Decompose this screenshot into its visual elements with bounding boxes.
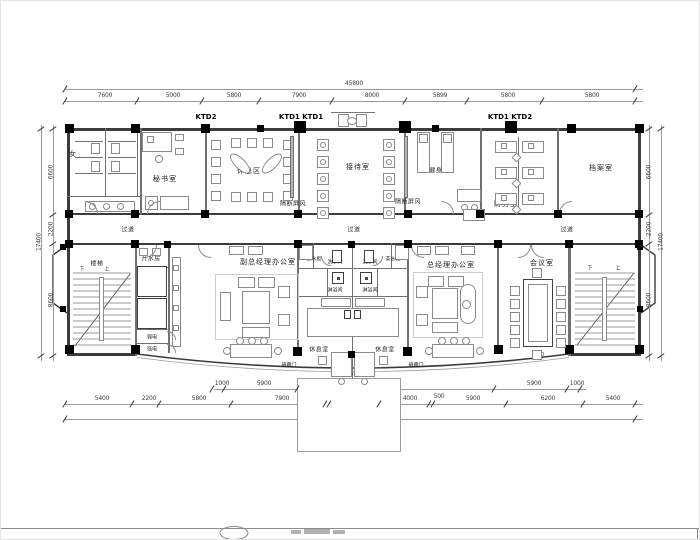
label-hidden-door-left: 暗藏门 [281, 362, 296, 369]
structural-column [635, 345, 644, 354]
meeting-chair [532, 268, 542, 278]
toilet-partition [67, 196, 141, 197]
meeting-chair [556, 299, 566, 309]
reception-chair [317, 190, 329, 202]
chair [476, 347, 484, 355]
lounge-chair [211, 157, 221, 167]
dim-bottom-seg: 6200 [541, 395, 555, 402]
structural-column [635, 210, 643, 218]
partition-screen [404, 136, 408, 198]
structural-column [348, 351, 355, 358]
wc-fixture [332, 250, 342, 263]
reception-chair [383, 190, 395, 202]
dim-bottom-seg: 500 [434, 393, 445, 400]
office-table [230, 344, 272, 358]
finance-chair [512, 179, 522, 189]
dim-top-seg: 5000 [166, 92, 180, 99]
structural-column [131, 210, 139, 218]
room-label-corridor-3: 过道 [560, 225, 573, 234]
sheet-caption-smudge [333, 530, 345, 534]
lounge-chair [247, 138, 257, 148]
structural-column [565, 345, 574, 354]
structural-column [294, 240, 302, 248]
stair-arrow-down-left: 下 [79, 266, 84, 273]
dim-top-seg: 7900 [292, 92, 306, 99]
room-label-deputy-gm-office: 副总经理办公室 [240, 257, 296, 267]
wc-fixture [91, 143, 100, 154]
reception-chair [383, 207, 395, 219]
dim-bottom-seg: 5400 [95, 395, 109, 402]
chair [438, 337, 446, 345]
desk-chair [361, 378, 368, 385]
coffee-table-oval [259, 150, 285, 176]
partition [135, 343, 169, 344]
structural-column [554, 210, 562, 218]
side-chair [318, 356, 327, 365]
elevator-shaft [137, 298, 167, 329]
wall-cabinet [435, 246, 449, 255]
door-swing [411, 245, 424, 258]
dim-overall-width-top: 45800 [345, 80, 363, 87]
dim-left-seg: 6600 [48, 165, 55, 179]
room-label-stairs-left: 楼梯 [90, 259, 103, 268]
dim-bottom-inner: 5900 [527, 380, 541, 387]
finance-chair [512, 153, 522, 163]
structural-column [403, 347, 412, 356]
structural-column [65, 345, 74, 354]
dim-bottom-inner: 1000 [215, 380, 229, 387]
dim-bottom-seg: 7900 [275, 395, 289, 402]
structural-column [637, 244, 643, 250]
chair [450, 337, 458, 345]
structural-column [131, 240, 139, 248]
storage-cell [354, 310, 361, 319]
treadmill-console [443, 134, 452, 143]
reception-chair [383, 173, 395, 185]
meeting-chair [510, 299, 520, 309]
dim-top-seg: 7600 [98, 92, 112, 99]
dimension-line [65, 101, 643, 102]
structural-column [565, 240, 573, 248]
reception-chair-cushion [320, 159, 326, 165]
floorplan-sheet: 45800 7600 5000 5800 7900 8000 5899 5800… [0, 0, 700, 540]
wall-exterior-bottom-right [569, 353, 641, 356]
sink [117, 203, 124, 210]
reception-chair-cushion [320, 193, 326, 199]
reception-chair-cushion [386, 193, 392, 199]
structural-column [60, 306, 66, 312]
side-table [175, 134, 184, 141]
dim-overall-height-left: 17400 [36, 233, 43, 251]
computer [147, 136, 154, 143]
finance-desk-spine [518, 137, 519, 213]
reception-chair [317, 173, 329, 185]
entrance-pier [356, 114, 367, 127]
counter-item [173, 325, 179, 331]
lounge-chair [231, 192, 241, 202]
structural-column [257, 125, 264, 132]
treadmill-console [419, 134, 428, 143]
room-label-weak-power: 弱电 [147, 334, 157, 341]
side-chair [379, 356, 388, 365]
sofa [432, 322, 458, 333]
chair [223, 347, 231, 355]
sofa [428, 276, 444, 287]
gym-machine [457, 189, 481, 202]
stair-arrow-up-right: 上 [615, 265, 620, 272]
lounge-chair [247, 192, 257, 202]
stair-rail [99, 277, 104, 341]
dim-overall-height-right: 17400 [658, 233, 665, 251]
structural-column [65, 124, 74, 133]
writing-desk [354, 352, 375, 377]
counter-item [173, 305, 179, 311]
structural-column [505, 121, 517, 133]
sheet-border-right [697, 528, 698, 540]
door-swing-double-left [518, 245, 531, 258]
dim-right-seg: 6600 [646, 165, 653, 179]
room-label-strong-power: 强电 [147, 346, 157, 353]
finance-monitor [528, 195, 534, 201]
partition [568, 243, 571, 356]
chair [248, 337, 256, 345]
reception-chair-cushion [386, 176, 392, 182]
elevator-shaft [137, 266, 167, 297]
finance-monitor [501, 195, 507, 201]
wardrobe [355, 298, 385, 307]
sheet-border-bottom [1, 528, 700, 529]
counter-item [173, 265, 179, 271]
wall-exterior-top [67, 128, 641, 131]
side-table [175, 148, 184, 155]
left-bay-outline [53, 245, 67, 313]
stall-line [108, 141, 136, 142]
room-label-archive: 档案室 [589, 163, 613, 173]
dim-right-seg: 2200 [646, 222, 653, 236]
stair-arrow-up-left: 上 [104, 266, 109, 273]
stall-line [75, 173, 103, 174]
dim-bottom-seg: 4000 [403, 395, 417, 402]
axis-tag-ktd1-ktd2: KTD1 KTD2 [488, 113, 532, 121]
wall-cabinet [229, 246, 244, 255]
shower-drain [337, 277, 340, 280]
meeting-chair [556, 286, 566, 296]
storage-cell [344, 310, 351, 319]
partition [135, 329, 169, 330]
room-label-corridor-1: 过道 [121, 225, 134, 234]
finance-monitor [528, 143, 534, 149]
wall-exterior-bottom-left [67, 353, 137, 356]
lounge-chair [263, 192, 273, 202]
sink [103, 203, 110, 210]
meeting-chair [556, 325, 566, 335]
sofa [258, 277, 275, 288]
structural-column [404, 240, 412, 248]
wc-fixture [91, 161, 100, 172]
lounge-chair [231, 138, 241, 148]
structural-column [65, 210, 73, 218]
desk-chair [338, 378, 345, 385]
sofa [220, 292, 231, 321]
door-swing [441, 201, 454, 214]
wall-cabinet [248, 246, 263, 255]
lounge-chair [211, 174, 221, 184]
dim-top-seg: 5800 [585, 92, 599, 99]
lounge-chair [263, 138, 273, 148]
door-swing [198, 245, 211, 258]
label-hidden-door-right: 暗藏门 [408, 362, 423, 369]
structural-column [293, 347, 302, 356]
structural-column [637, 306, 643, 312]
structural-column [348, 241, 355, 248]
structural-column [399, 121, 411, 133]
dim-top-seg: 8000 [365, 92, 379, 99]
partition [557, 128, 559, 215]
sofa [242, 327, 270, 338]
structural-column [131, 124, 140, 133]
entrance-canopy-line [331, 112, 375, 113]
label-shower-left: 淋浴间 [327, 287, 342, 294]
chair [236, 337, 244, 345]
structural-column [60, 244, 66, 250]
structural-column [294, 210, 302, 218]
reception-chair [317, 139, 329, 151]
structural-column [65, 240, 73, 248]
sheet-caption-smudge [304, 529, 330, 534]
reception-chair-cushion [320, 176, 326, 182]
wardrobe [321, 298, 351, 307]
label-rest-room-left: 休息室 [309, 345, 329, 354]
dim-bottom-seg: 5400 [606, 395, 620, 402]
conference-table-inner [528, 284, 548, 342]
axis-tag-ktd1-ktd1: KTD1 KTD1 [279, 113, 323, 121]
dim-bottom-inner: 5900 [257, 380, 271, 387]
structural-column [494, 345, 503, 354]
chair [260, 337, 268, 345]
chair [462, 337, 470, 345]
partition-screen [290, 136, 294, 198]
executive-chair [462, 300, 471, 309]
counter-item [173, 285, 179, 291]
meeting-chair [510, 325, 520, 335]
partition [497, 243, 499, 351]
sofa [238, 277, 255, 288]
reception-chair [317, 156, 329, 168]
toilet-partition [105, 128, 106, 197]
reception-chair-cushion [386, 210, 392, 216]
room-label-reception: 接待室 [346, 162, 370, 172]
label-shower-right: 淋浴间 [362, 287, 377, 294]
structural-column [432, 125, 439, 132]
cabinet-hatched [160, 196, 189, 210]
basement-entrance-outline [297, 378, 401, 452]
dim-top-seg: 5899 [433, 92, 447, 99]
stall-line [108, 173, 136, 174]
reception-chair [383, 139, 395, 151]
dim-left-seg: 8600 [48, 293, 55, 307]
wc-fixture [111, 161, 120, 172]
armchair [416, 286, 428, 298]
room-label-corridor-2: 过道 [347, 225, 360, 234]
reception-chair-cushion [386, 142, 392, 148]
armchair [278, 286, 290, 298]
stair-arrow-down-right: 下 [587, 265, 592, 272]
wc-fixture [111, 143, 120, 154]
dim-top-seg: 5800 [501, 92, 515, 99]
meeting-chair [510, 312, 520, 322]
axis-tag-ktd2: KTD2 [196, 113, 217, 121]
chair [274, 347, 282, 355]
room-label-secretary: 秘书室 [153, 174, 177, 184]
finance-monitor [528, 169, 534, 175]
lounge-chair [211, 140, 221, 150]
stair-rail [602, 277, 607, 341]
dim-bottom-seg: 5900 [466, 395, 480, 402]
dim-bottom-seg: 2200 [142, 395, 156, 402]
structural-column [567, 124, 576, 133]
partition [205, 128, 207, 215]
structural-column [476, 210, 484, 218]
room-label-meeting-room: 会议室 [530, 258, 554, 268]
meeting-chair [510, 338, 520, 348]
reception-chair-cushion [320, 210, 326, 216]
shower-drain [365, 277, 368, 280]
coffee-table [242, 291, 270, 324]
meeting-chair [556, 312, 566, 322]
dim-top-seg: 5800 [227, 92, 241, 99]
door-swing-double-right [531, 245, 544, 258]
reception-chair-cushion [320, 142, 326, 148]
stall-line [75, 141, 103, 142]
structural-column [164, 241, 171, 248]
reception-chair [317, 207, 329, 219]
stall-line [75, 157, 103, 158]
sheet-caption-smudge [291, 530, 301, 534]
structural-column [201, 210, 209, 218]
structural-column [494, 240, 502, 248]
chair [155, 155, 163, 163]
label-rest-room-right: 休息室 [375, 345, 395, 354]
dim-left-seg: 2200 [48, 222, 55, 236]
lounge-chair [211, 191, 221, 201]
meeting-chair [556, 338, 566, 348]
room-label-screen-2: 隔断屏风 [395, 197, 421, 206]
armchair [416, 314, 428, 326]
structural-column [294, 121, 306, 133]
dim-right-seg: 8600 [646, 293, 653, 307]
armchair [278, 314, 290, 326]
partition [298, 296, 408, 297]
structural-column [201, 124, 210, 133]
reception-chair [383, 156, 395, 168]
entrance-ornament [347, 117, 357, 125]
structural-column [635, 124, 644, 133]
wall-cabinet [461, 246, 475, 255]
dim-bottom-seg: 5800 [192, 395, 206, 402]
finance-monitor [501, 143, 507, 149]
meeting-chair [532, 350, 542, 360]
dimension-line [65, 89, 643, 90]
chair [425, 347, 433, 355]
meeting-chair [510, 286, 520, 296]
toilet-partition [137, 128, 138, 197]
door-swing [321, 256, 331, 266]
finance-monitor [501, 169, 507, 175]
reception-chair-cushion [386, 159, 392, 165]
room-label-gm-office: 总经理办公室 [427, 260, 475, 270]
structural-column [404, 210, 412, 218]
office-table [432, 344, 474, 358]
stall-line [108, 157, 136, 158]
door-swing [373, 256, 383, 266]
storage-block [307, 308, 399, 337]
structural-column [131, 345, 140, 354]
coffee-table [432, 288, 458, 319]
